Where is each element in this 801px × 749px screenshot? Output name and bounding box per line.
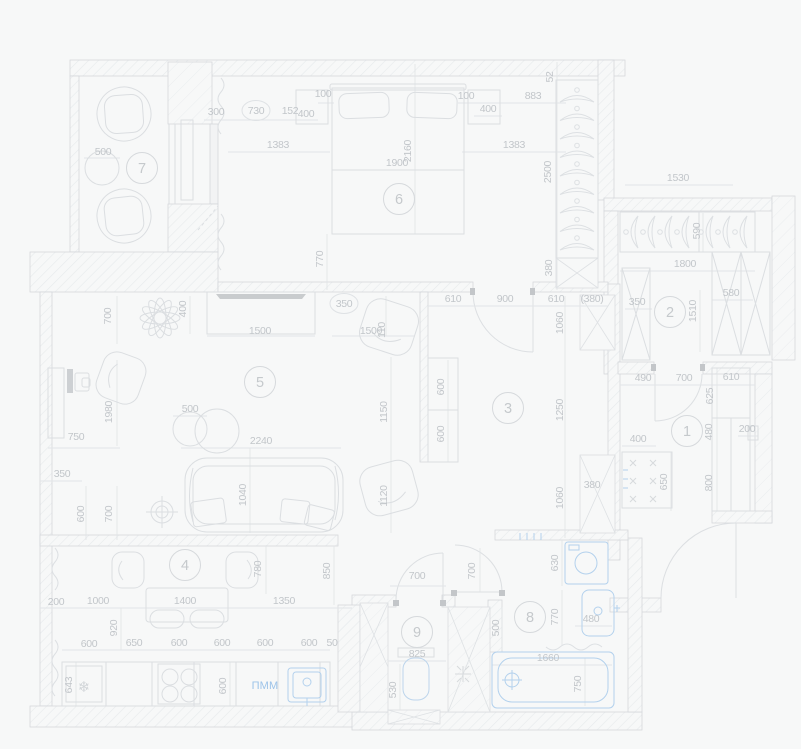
dimension-label: 1400: [174, 595, 197, 607]
dimension-label: 650: [658, 473, 670, 490]
dimension-label: 800: [703, 474, 715, 491]
dimension-label: 1510: [687, 299, 699, 322]
room-number: 4: [181, 558, 189, 574]
dimension-label: 2160: [402, 139, 414, 162]
dimension-label: 500: [182, 403, 199, 415]
dimension-label: 610: [445, 293, 462, 305]
dimension-label: 630: [549, 554, 561, 571]
dimension-label: 625: [704, 387, 716, 404]
dimension-label: 152: [282, 105, 299, 117]
dimension-label: 600: [214, 637, 231, 649]
dimension-label: 600: [81, 638, 98, 650]
dimension-label: 600: [217, 677, 229, 694]
room-number: 1: [683, 424, 691, 440]
dimension-label: 1350: [273, 595, 296, 607]
dimension-label: 650: [126, 637, 143, 649]
dimension-label: 610: [723, 371, 740, 383]
dimension-label: 1800: [674, 258, 697, 270]
dimension-label: 480: [703, 423, 715, 440]
dimension-label: 300: [208, 106, 225, 118]
dimension-label: 883: [525, 90, 542, 102]
room-number: 8: [526, 610, 534, 626]
dimension-label: 350: [629, 296, 646, 308]
dimension-label: 50: [326, 637, 338, 649]
dimension-label: 825: [409, 648, 426, 660]
dimension-label: 610: [548, 293, 565, 305]
dimension-label: 480: [583, 613, 600, 625]
dimension-label: 1040: [237, 483, 249, 506]
dimension-label: 1120: [378, 485, 390, 507]
dimension-label: 700: [409, 570, 426, 582]
dimension-label: 643: [63, 676, 75, 693]
dimension-label: 780: [252, 560, 264, 577]
dimension-label: 1660: [537, 652, 560, 664]
dishwasher-label: ПММ: [252, 680, 279, 692]
dimension-label: 1060: [554, 311, 566, 334]
dimension-label: 400: [630, 433, 647, 445]
dimension-label: 380: [543, 259, 555, 276]
dimension-label: 700: [466, 562, 478, 579]
dimension-label: 350: [54, 468, 71, 480]
dimension-label: 1250: [554, 398, 566, 421]
dimension-label: 1060: [554, 486, 566, 509]
dimension-label: 600: [75, 505, 87, 522]
dimension-label: 100: [315, 88, 332, 100]
dimension-label: 500: [490, 619, 502, 636]
room-number: 9: [413, 625, 421, 641]
floor-plan-drawing: 762531498 500300730152400100138310040088…: [0, 0, 801, 749]
dimension-label: 52: [544, 71, 556, 83]
room-number: 5: [256, 375, 264, 391]
dimension-label: 2500: [542, 160, 554, 183]
dimension-label: 530: [387, 681, 399, 698]
dimension-label: 2240: [250, 435, 273, 447]
dimension-label: 600: [257, 637, 274, 649]
dimension-label: 700: [102, 307, 114, 324]
dimension-label: 700: [676, 372, 693, 384]
dimension-label: 1150: [378, 401, 390, 423]
dimension-label: 350: [336, 298, 353, 310]
dimension-label: 1383: [267, 139, 290, 151]
dimension-label: 580: [723, 287, 740, 299]
dimension-label: 850: [321, 562, 333, 579]
dimension-label: 1530: [667, 172, 690, 184]
room-number: 2: [666, 305, 674, 321]
dimension-label: 400: [298, 108, 315, 120]
room-number: 3: [504, 401, 512, 417]
dimension-label: 490: [635, 372, 652, 384]
dimension-label: 600: [435, 378, 447, 395]
dimension-label: 1383: [503, 139, 526, 151]
dimension-label: 100: [458, 90, 475, 102]
dimension-label: 600: [171, 637, 188, 649]
dimension-label: 750: [572, 675, 584, 692]
dimension-label: 1500: [249, 325, 272, 337]
room-number: 6: [395, 192, 403, 208]
dimension-label: 200: [48, 596, 65, 608]
dimension-label: 770: [549, 608, 561, 625]
dimension-label: 700: [103, 505, 115, 522]
dimension-label: 600: [435, 425, 447, 442]
dimension-label: 380: [584, 479, 601, 491]
floor-plan-page: 762531498 500300730152400100138310040088…: [0, 0, 801, 749]
dimension-label: 400: [177, 300, 189, 317]
dimension-label: 750: [68, 431, 85, 443]
dimension-label: 1980: [103, 400, 115, 423]
dimension-label: 900: [497, 293, 514, 305]
dimension-label: 920: [108, 619, 120, 636]
dimension-label: 730: [248, 105, 265, 117]
dimension-label: 600: [301, 637, 318, 649]
dimension-label: 400: [480, 103, 497, 115]
room-number: 7: [138, 161, 146, 177]
dimension-label: (380): [580, 293, 603, 305]
dimension-label: 770: [314, 250, 326, 267]
dimension-label: 200: [739, 423, 756, 435]
dimension-label: 1000: [87, 595, 110, 607]
dimension-label: 500: [95, 146, 112, 158]
dimension-label: 590: [691, 222, 703, 239]
dimension-label: 110: [376, 322, 388, 338]
dimension-label: ❄: [78, 678, 91, 696]
